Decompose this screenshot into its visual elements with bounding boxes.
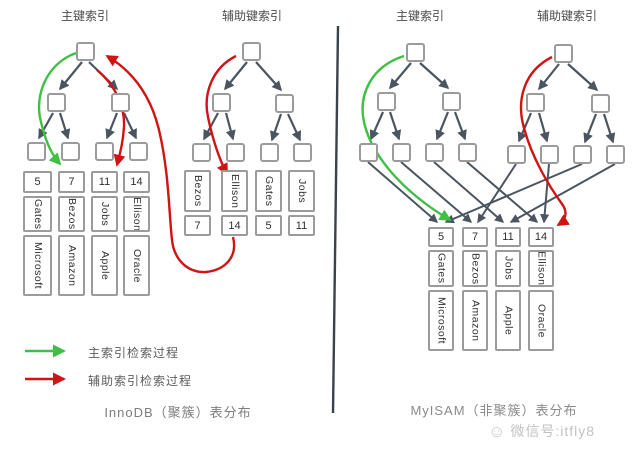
record-key-cell: 7 <box>462 227 488 247</box>
btree-node <box>443 93 460 110</box>
btree-node <box>527 94 544 111</box>
record-key-cell: 5 <box>23 171 52 193</box>
btree-node <box>28 143 45 160</box>
record-company-cell: Oracle <box>123 235 150 296</box>
btree-node <box>48 94 65 111</box>
btree-node <box>378 93 395 110</box>
record-column: 5 Gates Microsoft <box>23 171 52 296</box>
record-company-cell: Amazon <box>462 290 488 351</box>
record-key-cell: 5 <box>428 227 454 247</box>
btree-node <box>541 146 558 163</box>
record-name-cell: Bezos <box>462 250 488 287</box>
secondary-leaf-column: Jobs 11 <box>288 170 315 236</box>
myisam-caption: MyISAM（非聚簇）表分布 <box>410 400 577 419</box>
record-key-cell: 11 <box>91 171 118 193</box>
btree-node <box>62 143 79 160</box>
btree-node <box>112 94 129 111</box>
secondary-name-cell: Ellison <box>221 170 248 212</box>
record-key-cell: 14 <box>123 171 150 193</box>
record-company-cell: Apple <box>495 290 521 351</box>
record-company-cell: Amazon <box>58 235 85 296</box>
btree-node <box>508 146 525 163</box>
btree-node <box>243 43 260 60</box>
btree-node <box>607 146 624 163</box>
legend-primary-label: 主索引检索过程 <box>88 344 179 361</box>
record-key-cell: 11 <box>495 227 521 247</box>
btree-node <box>130 143 147 160</box>
btree-node <box>261 144 278 161</box>
btree-node <box>555 45 572 62</box>
smiley-icon: ☺ <box>488 423 506 440</box>
record-key-cell: 14 <box>528 227 554 247</box>
panel-divider <box>333 26 338 413</box>
left-secondary-index-title: 辅助键索引 <box>222 7 282 24</box>
record-company-cell: Apple <box>91 235 118 296</box>
record-company-cell: Microsoft <box>428 290 454 351</box>
secondary-key-cell: 14 <box>221 215 248 236</box>
btree-node <box>276 95 293 112</box>
record-name-cell: Gates <box>428 250 454 287</box>
secondary-leaf-column: Ellison 14 <box>221 170 248 236</box>
secondary-name-cell: Jobs <box>288 170 315 212</box>
btree-nodes <box>28 43 624 163</box>
btree-node <box>393 144 410 161</box>
innodb-caption: InnoDB（聚簇）表分布 <box>104 402 251 421</box>
record-column: 5 Gates Microsoft <box>428 227 454 351</box>
legend-secondary-label: 辅助索引检索过程 <box>88 372 192 389</box>
watermark-text: 微信号:itfly8 <box>510 421 595 441</box>
btree-node <box>213 94 230 111</box>
record-name-cell: Jobs <box>495 250 521 287</box>
index-structure-diagram: 主键索引 辅助键索引 主键索引 辅助键索引 5 Gates Microsoft … <box>0 0 633 461</box>
record-name-cell: Gates <box>23 196 52 232</box>
record-column: 7 Bezos Amazon <box>58 171 85 296</box>
btree-node <box>77 43 94 60</box>
record-name-cell: Ellison <box>123 196 150 232</box>
secondary-key-cell: 5 <box>255 215 282 236</box>
record-company-cell: Oracle <box>528 290 554 351</box>
right-primary-index-title: 主键索引 <box>396 7 444 24</box>
secondary-leaf-column: Gates 5 <box>255 170 282 236</box>
btree-node <box>574 146 591 163</box>
btree-node <box>459 144 476 161</box>
record-column: 7 Bezos Amazon <box>462 227 488 351</box>
record-name-cell: Ellison <box>528 250 554 287</box>
btree-node <box>193 144 210 161</box>
secondary-key-cell: 11 <box>288 215 315 236</box>
secondary-key-cell: 7 <box>184 215 211 236</box>
record-company-cell: Microsoft <box>23 235 52 296</box>
btree-node <box>592 95 609 112</box>
left-primary-index-title: 主键索引 <box>61 7 109 24</box>
secondary-name-cell: Bezos <box>184 170 211 212</box>
btree-node <box>96 143 113 160</box>
myisam-record-pointer-arrows <box>368 162 615 222</box>
record-column: 11 Jobs Apple <box>495 227 521 351</box>
secondary-name-cell: Gates <box>255 170 282 212</box>
btree-node <box>360 144 377 161</box>
btree-node <box>294 144 311 161</box>
btree-node <box>227 144 244 161</box>
secondary-leaf-column: Bezos 7 <box>184 170 211 236</box>
record-column: 14 Ellison Oracle <box>528 227 554 351</box>
right-secondary-index-title: 辅助键索引 <box>537 7 597 24</box>
record-name-cell: Bezos <box>58 196 85 232</box>
watermark: ☺ 微信号:itfly8 <box>488 421 595 441</box>
record-column: 11 Jobs Apple <box>91 171 118 296</box>
btree-node <box>426 144 443 161</box>
btree-node <box>407 44 424 61</box>
record-key-cell: 7 <box>58 171 85 193</box>
record-name-cell: Jobs <box>91 196 118 232</box>
record-column: 14 Ellison Oracle <box>123 171 150 296</box>
